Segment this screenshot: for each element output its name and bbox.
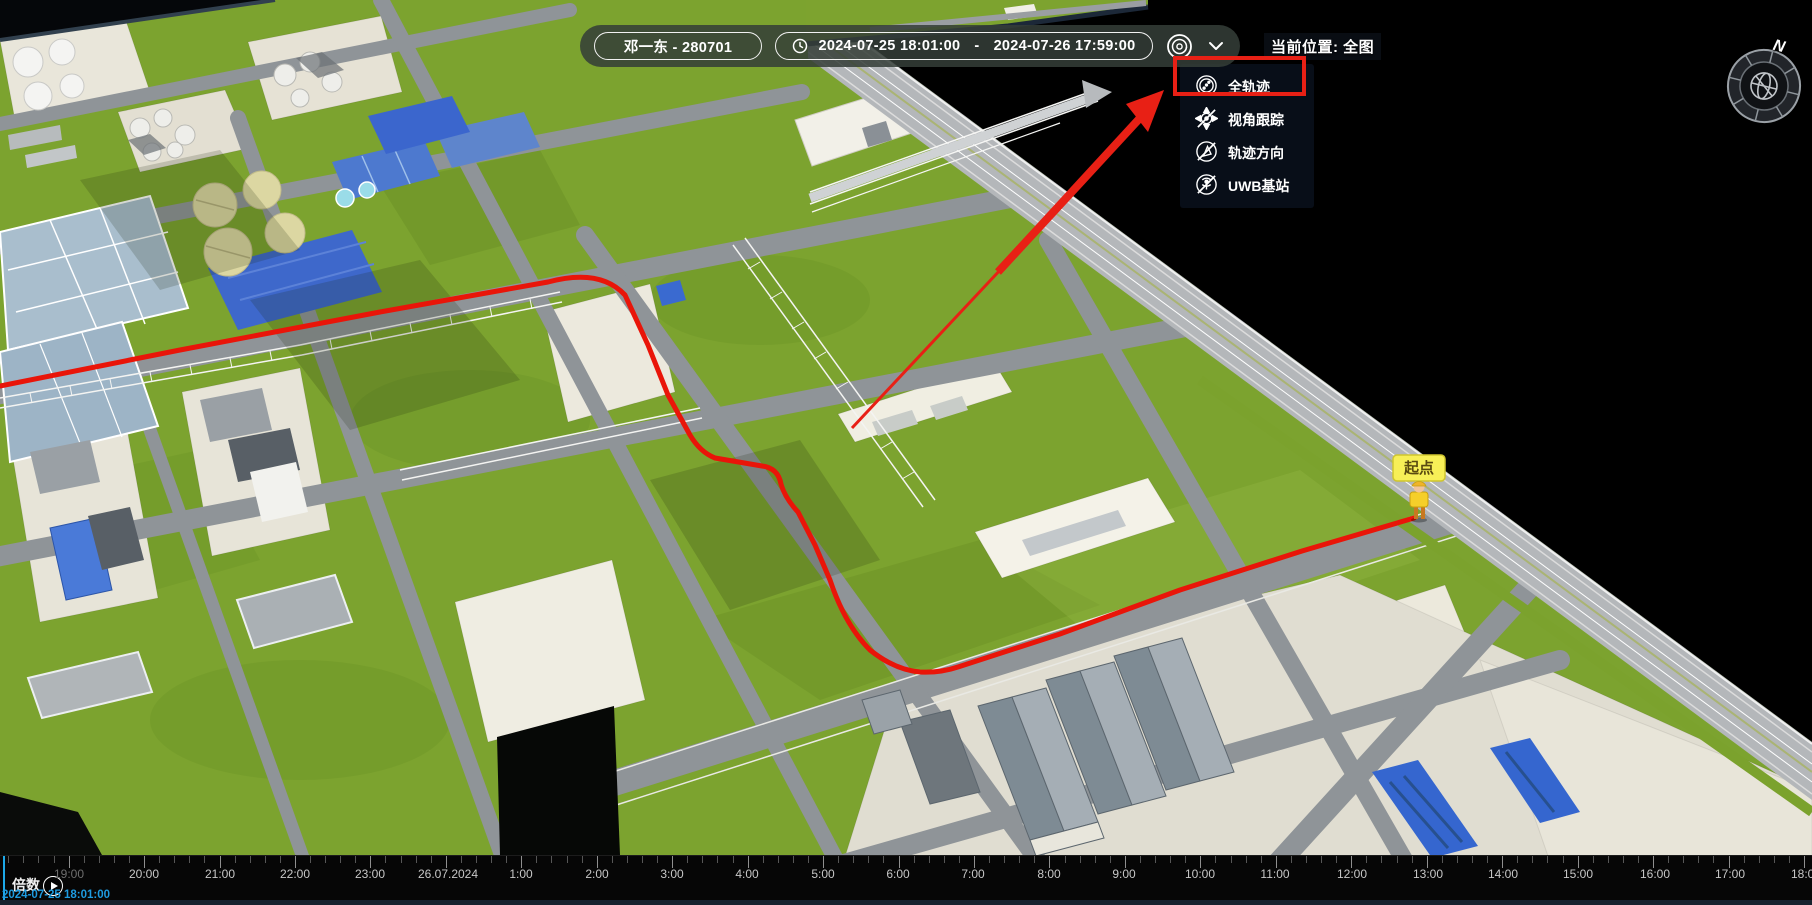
timeline-label: 15:00 bbox=[1563, 867, 1593, 881]
minor-tick bbox=[99, 856, 100, 863]
trajectory-direction-icon bbox=[1195, 140, 1218, 166]
clock-icon bbox=[792, 38, 808, 54]
dropdown-item-label: 轨迹方向 bbox=[1228, 143, 1284, 163]
dropdown-item-label: 视角跟踪 bbox=[1228, 110, 1284, 130]
minor-tick bbox=[582, 856, 583, 863]
date-start-value: 2024-07-25 18:01:00 bbox=[818, 38, 960, 54]
minor-tick bbox=[235, 856, 236, 863]
minor-tick bbox=[189, 856, 190, 863]
minor-tick bbox=[612, 856, 613, 863]
minor-tick bbox=[174, 856, 175, 863]
timeline-label: 16:00 bbox=[1640, 867, 1670, 881]
minor-tick bbox=[1140, 856, 1141, 863]
timeline-label: 20:00 bbox=[129, 867, 159, 881]
timeline-label: 9:00 bbox=[1112, 867, 1135, 881]
minor-tick bbox=[1683, 856, 1684, 863]
timeline-label: 23:00 bbox=[355, 867, 385, 881]
minor-tick bbox=[853, 856, 854, 863]
minor-tick bbox=[1170, 856, 1171, 863]
minor-tick bbox=[944, 856, 945, 863]
minor-tick bbox=[1110, 856, 1111, 863]
minor-tick bbox=[1261, 856, 1262, 863]
view-tracking-icon bbox=[1195, 107, 1218, 133]
minor-tick bbox=[476, 856, 477, 863]
minor-tick bbox=[1381, 856, 1382, 863]
minor-tick bbox=[1487, 856, 1488, 863]
minor-tick bbox=[1759, 856, 1760, 863]
minor-tick bbox=[1623, 856, 1624, 863]
dropdown-item-4[interactable]: UWB基站 bbox=[1180, 169, 1314, 202]
minor-tick bbox=[914, 856, 915, 863]
minor-tick bbox=[1065, 856, 1066, 863]
minor-tick bbox=[1306, 856, 1307, 863]
playback-toolbar: 邓一东 - 280701 2024-07-25 18:01:00 - 2024-… bbox=[580, 25, 1240, 67]
timeline-label: 2:00 bbox=[585, 867, 608, 881]
minor-tick bbox=[1231, 856, 1232, 863]
minor-tick bbox=[8, 856, 9, 863]
minor-tick bbox=[627, 856, 628, 863]
minor-tick bbox=[1442, 856, 1443, 863]
minor-tick bbox=[883, 856, 884, 863]
timeline-label: 4:00 bbox=[735, 867, 758, 881]
minor-tick bbox=[1713, 856, 1714, 863]
minor-tick bbox=[1336, 856, 1337, 863]
minor-tick bbox=[84, 856, 85, 863]
minor-tick bbox=[1019, 856, 1020, 863]
timeline-label: 13:00 bbox=[1413, 867, 1443, 881]
minor-tick bbox=[54, 856, 55, 863]
minor-tick bbox=[642, 856, 643, 863]
minor-tick bbox=[1215, 856, 1216, 863]
date-range-selector[interactable]: 2024-07-25 18:01:00 - 2024-07-26 17:59:0… bbox=[775, 32, 1153, 60]
person-selector[interactable]: 邓一东 - 280701 bbox=[594, 32, 762, 60]
timeline-label: 8:00 bbox=[1037, 867, 1060, 881]
minor-tick bbox=[1397, 856, 1398, 863]
minor-tick bbox=[717, 856, 718, 863]
minor-tick bbox=[1789, 856, 1790, 863]
minor-tick bbox=[250, 856, 251, 863]
dropdown-item-1[interactable]: 全轨迹 bbox=[1180, 70, 1314, 103]
minor-tick bbox=[340, 856, 341, 863]
minor-tick bbox=[461, 856, 462, 863]
timeline-label: 18:00 bbox=[1791, 867, 1812, 881]
minor-tick bbox=[1472, 856, 1473, 863]
locate-target-icon[interactable] bbox=[1166, 33, 1193, 60]
timeline-label: 21:00 bbox=[205, 867, 235, 881]
minor-tick bbox=[385, 856, 386, 863]
minor-tick bbox=[1563, 856, 1564, 863]
minor-tick bbox=[551, 856, 552, 863]
minor-tick bbox=[567, 856, 568, 863]
minor-tick bbox=[401, 856, 402, 863]
timeline-bottom-strip bbox=[0, 900, 1812, 905]
full-trajectory-icon bbox=[1195, 74, 1218, 100]
minor-tick bbox=[355, 856, 356, 863]
minor-tick bbox=[1246, 856, 1247, 863]
minor-tick bbox=[1517, 856, 1518, 863]
timeline-label: 17:00 bbox=[1715, 867, 1745, 881]
minor-tick bbox=[416, 856, 417, 863]
person-selector-value: 邓一东 - 280701 bbox=[624, 36, 732, 57]
timeline-label: 6:00 bbox=[886, 867, 909, 881]
timeline-label: 11:00 bbox=[1260, 867, 1289, 881]
timeline-label: 5:00 bbox=[811, 867, 834, 881]
dropdown-item-2[interactable]: 视角跟踪 bbox=[1180, 103, 1314, 136]
minor-tick bbox=[959, 856, 960, 863]
timeline-label: 14:00 bbox=[1488, 867, 1518, 881]
minor-tick bbox=[1532, 856, 1533, 863]
minor-tick bbox=[265, 856, 266, 863]
minor-tick bbox=[1547, 856, 1548, 863]
uwb-station-icon bbox=[1195, 173, 1218, 199]
minor-tick bbox=[38, 856, 39, 863]
minor-tick bbox=[129, 856, 130, 863]
minor-tick bbox=[1744, 856, 1745, 863]
minor-tick bbox=[763, 856, 764, 863]
minor-tick bbox=[1366, 856, 1367, 863]
minor-tick bbox=[778, 856, 779, 863]
trajectory-options-dropdown: 全轨迹视角跟踪轨迹方向UWB基站 bbox=[1180, 64, 1314, 208]
timeline-label: 22:00 bbox=[280, 867, 310, 881]
current-location-label: 当前位置: 全图 bbox=[1264, 33, 1381, 60]
map-3d-view[interactable]: 起点 bbox=[0, 0, 1812, 905]
minor-tick bbox=[1321, 856, 1322, 863]
minor-tick bbox=[702, 856, 703, 863]
minor-tick bbox=[1608, 856, 1609, 863]
minor-tick bbox=[1034, 856, 1035, 863]
minor-tick bbox=[657, 856, 658, 863]
minor-tick bbox=[929, 856, 930, 863]
minor-tick bbox=[1155, 856, 1156, 863]
minor-tick bbox=[868, 856, 869, 863]
minor-tick bbox=[1774, 856, 1775, 863]
minor-tick bbox=[431, 856, 432, 863]
minor-tick bbox=[325, 856, 326, 863]
minor-tick bbox=[1668, 856, 1669, 863]
minor-tick bbox=[114, 856, 115, 863]
chevron-down-icon[interactable] bbox=[1206, 36, 1226, 56]
dropdown-item-label: 全轨迹 bbox=[1228, 77, 1270, 97]
minor-tick bbox=[1080, 856, 1081, 863]
minor-tick bbox=[733, 856, 734, 863]
minor-tick bbox=[793, 856, 794, 863]
timeline-label: 3:00 bbox=[660, 867, 683, 881]
minor-tick bbox=[1291, 856, 1292, 863]
minor-tick bbox=[536, 856, 537, 863]
minor-tick bbox=[1638, 856, 1639, 863]
minor-tick bbox=[1095, 856, 1096, 863]
minor-tick bbox=[1457, 856, 1458, 863]
minor-tick bbox=[838, 856, 839, 863]
timeline-label: 7:00 bbox=[961, 867, 984, 881]
dropdown-item-label: UWB基站 bbox=[1228, 176, 1289, 196]
minor-tick bbox=[687, 856, 688, 863]
minor-tick bbox=[1412, 856, 1413, 863]
minor-tick bbox=[204, 856, 205, 863]
minor-tick bbox=[280, 856, 281, 863]
minor-tick bbox=[159, 856, 160, 863]
minor-tick bbox=[23, 856, 24, 863]
timeline-label: 19:00 bbox=[54, 867, 84, 881]
dropdown-item-3[interactable]: 轨迹方向 bbox=[1180, 136, 1314, 169]
minor-tick bbox=[808, 856, 809, 863]
compass-widget[interactable]: N bbox=[1720, 42, 1812, 134]
date-separator: - bbox=[970, 38, 983, 54]
timeline-label: 1:00 bbox=[509, 867, 532, 881]
app-window: 起点 邓一东 - 280701 2024-07-25 18:01:00 - 20… bbox=[0, 0, 1812, 905]
minor-tick bbox=[310, 856, 311, 863]
minor-tick bbox=[1698, 856, 1699, 863]
timeline-scrubber[interactable]: 倍数 2024-07-25 18:01:00 19:0020:0021:0022… bbox=[0, 855, 1812, 905]
minor-tick bbox=[989, 856, 990, 863]
minor-tick bbox=[1593, 856, 1594, 863]
minor-tick bbox=[506, 856, 507, 863]
minor-tick bbox=[491, 856, 492, 863]
start-point-label: 起点 bbox=[1403, 460, 1434, 477]
timeline-label: 26.07.2024 bbox=[418, 867, 478, 881]
timeline-label: 10:00 bbox=[1185, 867, 1215, 881]
timeline-label: 12:00 bbox=[1337, 867, 1367, 881]
minor-tick bbox=[1004, 856, 1005, 863]
date-end-value: 2024-07-26 17:59:00 bbox=[994, 38, 1136, 54]
minor-tick bbox=[1185, 856, 1186, 863]
